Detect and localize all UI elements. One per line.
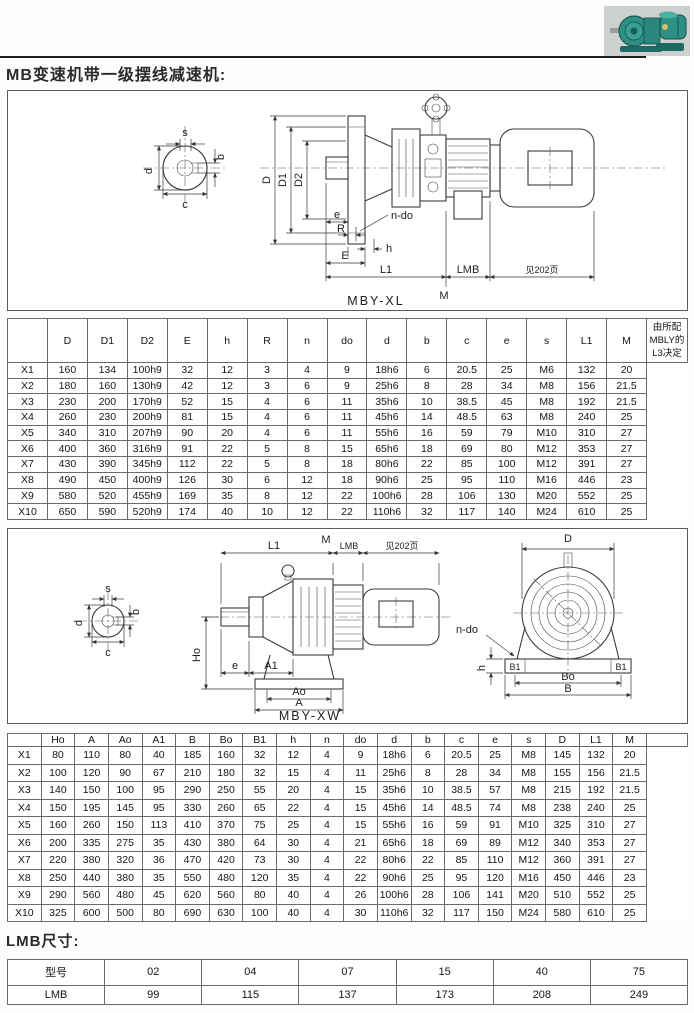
cell: 04 <box>202 960 299 986</box>
cell: 26 <box>344 887 378 905</box>
dim-label-s: s <box>105 583 111 595</box>
cell: 35h6 <box>377 782 411 800</box>
lmb-size-table: 型号020407154075LMB99115137173208249 <box>7 959 688 1005</box>
cell: 80h6 <box>367 457 407 473</box>
cell: 230 <box>87 410 127 426</box>
cell: 370 <box>209 817 243 835</box>
cell: 22 <box>277 799 311 817</box>
dim-label-D: D <box>564 533 572 545</box>
cell: 11 <box>327 410 367 426</box>
table-row: X9290560480456205608040426100h628106141M… <box>8 887 688 905</box>
cell: 192 <box>567 394 607 410</box>
xw-dimensions: L1 M LMB 见202页 Ho e A1 Ao <box>191 534 439 714</box>
cell: M12 <box>527 441 567 457</box>
cell: 80 <box>487 441 527 457</box>
cell: 91 <box>478 817 512 835</box>
table-row: X9580520455h91693581222100h628106130M205… <box>8 488 688 504</box>
cell: 160 <box>47 363 87 379</box>
cell: 80 <box>41 747 75 765</box>
dim-label-see-page: 见202页 <box>525 265 558 275</box>
cell: 310 <box>87 425 127 441</box>
cell: 4 <box>310 852 344 870</box>
row-label: X3 <box>8 782 42 800</box>
cell: 8 <box>247 488 287 504</box>
col-header: D <box>546 734 580 747</box>
table-row: X103256005008069063010040430110h63211715… <box>8 904 688 922</box>
cell: 610 <box>579 904 613 922</box>
cell: 4 <box>310 782 344 800</box>
cell: M8 <box>512 799 546 817</box>
cell: 156 <box>567 378 607 394</box>
cell: 74 <box>478 799 512 817</box>
cell: 02 <box>105 960 202 986</box>
row-label: X10 <box>8 904 42 922</box>
row-label: X1 <box>8 363 48 379</box>
cell: 160 <box>87 378 127 394</box>
col-header: B <box>176 734 210 747</box>
cell: 75 <box>243 817 277 835</box>
col-header: n <box>310 734 344 747</box>
dim-label-n-do: n-do <box>391 210 413 222</box>
table-row: LMB99115137173208249 <box>8 985 688 1005</box>
cell: 40 <box>142 747 176 765</box>
row-label: X2 <box>8 764 42 782</box>
cell: 117 <box>445 904 479 922</box>
col-header: h <box>207 319 247 363</box>
cell: 18 <box>407 441 447 457</box>
cell: 15 <box>344 799 378 817</box>
row-label: X10 <box>8 504 48 520</box>
cell: 25 <box>411 869 445 887</box>
cell: M8 <box>527 394 567 410</box>
cell: 430 <box>176 834 210 852</box>
dim-label-c: c <box>182 199 188 211</box>
cell: 150 <box>478 904 512 922</box>
cell: 22 <box>207 441 247 457</box>
cell: 35 <box>142 834 176 852</box>
col-header: L1 <box>567 319 607 363</box>
cell: 22 <box>207 457 247 473</box>
divider <box>0 56 646 58</box>
cell: 360 <box>546 852 580 870</box>
cell: 20.5 <box>447 363 487 379</box>
cell: 110 <box>75 747 109 765</box>
cell: 325 <box>41 904 75 922</box>
cell: 391 <box>567 457 607 473</box>
table-header-row: HoAAoA1BBoB1hndodbcesDL1M <box>8 734 688 747</box>
diagram-xw: s d b c <box>8 529 687 723</box>
cell: 81 <box>167 410 207 426</box>
cell: 14 <box>411 799 445 817</box>
dim-label-B1-right: B1 <box>615 662 626 672</box>
cell: 28 <box>407 488 447 504</box>
cell: 580 <box>546 904 580 922</box>
cell: 34 <box>478 764 512 782</box>
table-row: X5160260150113410370752541555h6165991M10… <box>8 817 688 835</box>
dim-label-d: d <box>143 168 155 174</box>
cell: 99 <box>105 985 202 1005</box>
cell: 28 <box>447 378 487 394</box>
cell: 275 <box>108 834 142 852</box>
cell: 353 <box>579 834 613 852</box>
col-header: Ho <box>41 734 75 747</box>
cell: 27 <box>607 457 647 473</box>
cell: 25 <box>613 904 647 922</box>
cell: 173 <box>396 985 493 1005</box>
cell: 200 <box>41 834 75 852</box>
row-label: X4 <box>8 799 42 817</box>
row-label: X8 <box>8 472 48 488</box>
shaft-section-detail: s d b c <box>73 583 142 659</box>
cell: 36 <box>142 852 176 870</box>
diagram-xl: s d b c <box>8 91 687 310</box>
cell: 25 <box>613 887 647 905</box>
cell: 8 <box>287 441 327 457</box>
dim-label-b: b <box>130 609 142 615</box>
dim-label-A1: A1 <box>264 660 277 672</box>
cell: 380 <box>108 869 142 887</box>
cell: 55h6 <box>367 425 407 441</box>
cell: 07 <box>299 960 396 986</box>
cell: 27 <box>613 852 647 870</box>
cell: 28 <box>411 887 445 905</box>
cell: 16 <box>407 425 447 441</box>
cell: 95 <box>142 782 176 800</box>
cell: 35 <box>207 488 247 504</box>
cell: 90h6 <box>377 869 411 887</box>
cell: 391 <box>579 852 613 870</box>
cell: 320 <box>108 852 142 870</box>
cell: 85 <box>445 852 479 870</box>
cell: M10 <box>527 425 567 441</box>
col-header <box>8 734 42 747</box>
cell: 59 <box>445 817 479 835</box>
cell: 9 <box>327 363 367 379</box>
cell: 27 <box>613 817 647 835</box>
cell: 100h9 <box>127 363 167 379</box>
cell: 132 <box>579 747 613 765</box>
cell: 140 <box>41 782 75 800</box>
dim-label-A: A <box>295 697 303 709</box>
cell: 23 <box>607 472 647 488</box>
cell: 38.5 <box>447 394 487 410</box>
cell: 520h9 <box>127 504 167 520</box>
cell: 390 <box>87 457 127 473</box>
cell: 6 <box>287 378 327 394</box>
col-header: Ao <box>108 734 142 747</box>
col-header: d <box>377 734 411 747</box>
cell: 18h6 <box>367 363 407 379</box>
cell: 552 <box>567 488 607 504</box>
cell: 160 <box>41 817 75 835</box>
cell: 27 <box>613 834 647 852</box>
cell: 22 <box>344 869 378 887</box>
cell: 4 <box>247 394 287 410</box>
cell: 325 <box>546 817 580 835</box>
cell: 21.5 <box>613 782 647 800</box>
diagram-xl-caption: MBY-XL <box>347 294 404 308</box>
cell: 100 <box>243 904 277 922</box>
cell: 185 <box>176 747 210 765</box>
col-header: Bo <box>209 734 243 747</box>
col-header: s <box>512 734 546 747</box>
cell: 42 <box>167 378 207 394</box>
cell: 73 <box>243 852 277 870</box>
cell: 40 <box>277 904 311 922</box>
cell: 550 <box>176 869 210 887</box>
cell: 59 <box>447 425 487 441</box>
cell: 630 <box>209 904 243 922</box>
cell: 30 <box>344 904 378 922</box>
cell: 240 <box>567 410 607 426</box>
dim-label-n-do: n-do <box>456 624 478 636</box>
cell: 85 <box>447 457 487 473</box>
cell: 23 <box>613 869 647 887</box>
cell: M12 <box>527 457 567 473</box>
cell: 20 <box>607 363 647 379</box>
cell: 113 <box>142 817 176 835</box>
cell: 12 <box>277 747 311 765</box>
cell: 15 <box>207 394 247 410</box>
cell: 20 <box>613 747 647 765</box>
cell: 110 <box>478 852 512 870</box>
cell: 345h9 <box>127 457 167 473</box>
dim-label-D1: D1 <box>277 173 289 187</box>
cell: 250 <box>209 782 243 800</box>
cell: 6 <box>247 472 287 488</box>
table-row: X2180160130h9421236925h682834M815621.5 <box>8 378 688 394</box>
cell: 620 <box>176 887 210 905</box>
cell: 6 <box>287 394 327 410</box>
table-row: X7430390345h911222581880h62285100M123912… <box>8 457 688 473</box>
cell: 64 <box>243 834 277 852</box>
cell: 12 <box>287 488 327 504</box>
cell: 40 <box>493 960 590 986</box>
cell: M8 <box>512 747 546 765</box>
cell: 27 <box>607 441 647 457</box>
cell: 150 <box>41 799 75 817</box>
cell: 480 <box>108 887 142 905</box>
row-label: X6 <box>8 441 48 457</box>
col-header: A <box>75 734 109 747</box>
cell: 21.5 <box>607 378 647 394</box>
cell: 95 <box>142 799 176 817</box>
cell: 450 <box>546 869 580 887</box>
row-label: LMB <box>8 985 105 1005</box>
col-header: b <box>407 319 447 363</box>
dim-label-D2: D2 <box>293 173 305 187</box>
cell: 690 <box>176 904 210 922</box>
table-row: X6400360316h99122581565h6186980M1235327 <box>8 441 688 457</box>
xw-front-view: D n-do h B1 B1 Bo B <box>456 533 631 699</box>
cell: 35 <box>277 869 311 887</box>
xw-assembly-view <box>203 565 453 689</box>
cell: M20 <box>527 488 567 504</box>
dim-label-e: e <box>334 209 340 221</box>
row-label: X9 <box>8 488 48 504</box>
cell: 100 <box>487 457 527 473</box>
cell: 15 <box>344 782 378 800</box>
lmb-heading: LMB尺寸: <box>6 930 80 951</box>
dim-label-s: s <box>182 127 188 139</box>
cell: 455h9 <box>127 488 167 504</box>
xw-dimension-table: HoAAoA1BBoB1hndodbcesDL1M X1801108040185… <box>7 733 688 922</box>
cell: 9 <box>344 747 378 765</box>
col-header: do <box>327 319 367 363</box>
cell: 169 <box>167 488 207 504</box>
row-label: X4 <box>8 410 48 426</box>
cell: 250 <box>41 869 75 887</box>
dim-label-b: b <box>215 154 227 160</box>
cell: 470 <box>176 852 210 870</box>
dim-label-d: d <box>73 620 85 626</box>
cell: 32 <box>411 904 445 922</box>
cell: 15 <box>327 441 367 457</box>
dim-label-L1: L1 <box>268 540 280 552</box>
cell: 4 <box>310 764 344 782</box>
table-row: 型号020407154075 <box>8 960 688 986</box>
cell: 380 <box>75 852 109 870</box>
xl-dimensions: D D1 D2 n-do e R <box>261 116 594 302</box>
cell: 40 <box>277 887 311 905</box>
cell: 25h6 <box>367 378 407 394</box>
cell: 137 <box>299 985 396 1005</box>
catalog-page: MB变速机带一级摆线减速机: s <box>0 0 694 1013</box>
cell: 21.5 <box>613 764 647 782</box>
cell: 8 <box>407 378 447 394</box>
cell: 420 <box>209 852 243 870</box>
cell: 140 <box>487 504 527 520</box>
cell: 22 <box>407 457 447 473</box>
cell: 6 <box>287 425 327 441</box>
cell: 11 <box>344 764 378 782</box>
cell: 552 <box>579 887 613 905</box>
cell: 150 <box>108 817 142 835</box>
col-header <box>8 319 48 363</box>
cell: 208 <box>493 985 590 1005</box>
cell: 18h6 <box>377 747 411 765</box>
cell: 80 <box>108 747 142 765</box>
table-row: X5340310207h99020461155h6165979M1031027 <box>8 425 688 441</box>
cell: 340 <box>47 425 87 441</box>
cell: 12 <box>287 472 327 488</box>
cell: 21 <box>344 834 378 852</box>
cell: 79 <box>487 425 527 441</box>
cell: 310 <box>579 817 613 835</box>
cell: 520 <box>87 488 127 504</box>
cell: 30 <box>277 852 311 870</box>
cell: 174 <box>167 504 207 520</box>
cell: 32 <box>167 363 207 379</box>
cell: 4 <box>310 817 344 835</box>
cell: 6 <box>287 410 327 426</box>
table-row: X620033527535430380643042165h6186989M123… <box>8 834 688 852</box>
cell: 290 <box>41 887 75 905</box>
cell: 126 <box>167 472 207 488</box>
row-label: 型号 <box>8 960 105 986</box>
cell: 110h6 <box>367 504 407 520</box>
col-header: E <box>167 319 207 363</box>
diagram-xw-caption: MBY-XW <box>279 709 341 723</box>
col-header: D2 <box>127 319 167 363</box>
cell: M12 <box>512 834 546 852</box>
cell: M16 <box>527 472 567 488</box>
cell: 220 <box>41 852 75 870</box>
dim-label-Ho: Ho <box>191 648 203 662</box>
cell: 22 <box>344 852 378 870</box>
cell: 11 <box>327 394 367 410</box>
cell: 69 <box>447 441 487 457</box>
cell: 10 <box>411 782 445 800</box>
dim-label-E: E <box>341 250 348 262</box>
row-label: X9 <box>8 887 42 905</box>
cell: 9 <box>327 378 367 394</box>
page-title: MB变速机带一级摆线减速机: <box>6 61 226 85</box>
cell: 89 <box>478 834 512 852</box>
cell: 115 <box>202 985 299 1005</box>
cell: 90 <box>167 425 207 441</box>
cell: 38.5 <box>445 782 479 800</box>
cell: M8 <box>527 410 567 426</box>
cell: 45h6 <box>377 799 411 817</box>
dim-label-B: B <box>564 683 571 695</box>
table-row: X4260230200h98115461145h61448.563M824025 <box>8 410 688 426</box>
xl-dimension-table: DD1D2EhRndodbcesL1M由所配MBLY的L3决定 X1160134… <box>7 318 688 520</box>
cell: 65h6 <box>367 441 407 457</box>
cell: 100 <box>41 764 75 782</box>
cell: 200h9 <box>127 410 167 426</box>
cell: 360 <box>87 441 127 457</box>
cell: 238 <box>546 799 580 817</box>
cell: 260 <box>47 410 87 426</box>
cell: 180 <box>209 764 243 782</box>
cell: 560 <box>209 887 243 905</box>
cell: 249 <box>590 985 687 1005</box>
cell: 3 <box>247 378 287 394</box>
row-label: X6 <box>8 834 42 852</box>
col-header: do <box>344 734 378 747</box>
col-header: M <box>613 734 647 747</box>
cell: 353 <box>567 441 607 457</box>
cell: 90 <box>108 764 142 782</box>
col-header: d <box>367 319 407 363</box>
cell: 95 <box>447 472 487 488</box>
cell: 490 <box>47 472 87 488</box>
cell: 446 <box>567 472 607 488</box>
cell: 100h6 <box>367 488 407 504</box>
cell: 180 <box>47 378 87 394</box>
cell: 4 <box>247 425 287 441</box>
cell: M12 <box>512 852 546 870</box>
cell: 5 <box>247 457 287 473</box>
cell: 210 <box>176 764 210 782</box>
cell: 150 <box>75 782 109 800</box>
cell: 145 <box>108 799 142 817</box>
cell: 560 <box>75 887 109 905</box>
cell: 207h9 <box>127 425 167 441</box>
cell: 132 <box>567 363 607 379</box>
col-header: R <box>247 319 287 363</box>
cell: M8 <box>512 782 546 800</box>
col-header: b <box>411 734 445 747</box>
cell: 48.5 <box>445 799 479 817</box>
cell: 18 <box>327 457 367 473</box>
cell: 25 <box>613 799 647 817</box>
cell: 430 <box>47 457 87 473</box>
table-row: X21001209067210180321541125h682834M81551… <box>8 764 688 782</box>
cell: 12 <box>207 378 247 394</box>
row-label: X7 <box>8 852 42 870</box>
